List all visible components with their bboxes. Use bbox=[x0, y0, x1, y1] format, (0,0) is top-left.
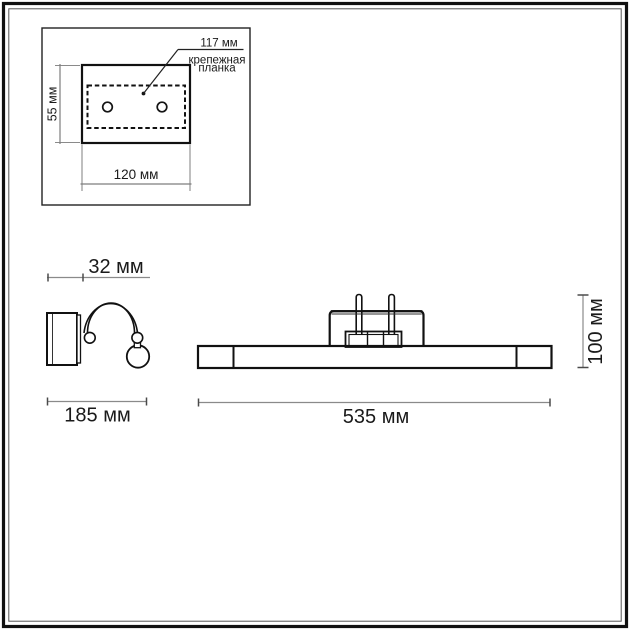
side-width-label: 185 мм bbox=[64, 405, 130, 427]
wall-mount-plate-strip bbox=[77, 315, 81, 363]
plate-outline bbox=[82, 65, 190, 143]
plate-height-label: 55 мм bbox=[46, 87, 60, 122]
drawing-sheet: 55 мм 117 мм крепежная планка 120 мм 32 … bbox=[0, 0, 630, 630]
arm-joint-ball-left bbox=[84, 332, 95, 343]
arm-joint-ball-right bbox=[132, 332, 143, 343]
front-view: 100 мм 535 мм bbox=[198, 295, 607, 429]
arm-arc-outer bbox=[84, 304, 138, 333]
side-depth-label: 32 мм bbox=[88, 256, 143, 278]
plate-width-label: 120 мм bbox=[114, 167, 159, 182]
lamp-bar bbox=[198, 346, 552, 368]
callout-text-line2: планка bbox=[198, 63, 236, 75]
callout-value-label: 117 мм bbox=[200, 38, 237, 50]
lamp-shade-ball bbox=[127, 345, 149, 367]
mounting-bracket bbox=[330, 311, 424, 347]
side-view: 32 мм 185 мм bbox=[47, 256, 150, 427]
wall-mount-body bbox=[47, 313, 77, 365]
mounting-hole-left bbox=[103, 102, 113, 112]
front-length-label: 535 мм bbox=[343, 406, 409, 428]
arm-arc-inner bbox=[88, 303, 135, 333]
mounting-plate-inset: 55 мм 117 мм крепежная планка 120 мм bbox=[42, 28, 250, 205]
technical-drawing: 55 мм 117 мм крепежная планка 120 мм 32 … bbox=[0, 0, 630, 630]
mounting-hole-right bbox=[157, 102, 167, 112]
front-height-label: 100 мм bbox=[585, 298, 607, 364]
